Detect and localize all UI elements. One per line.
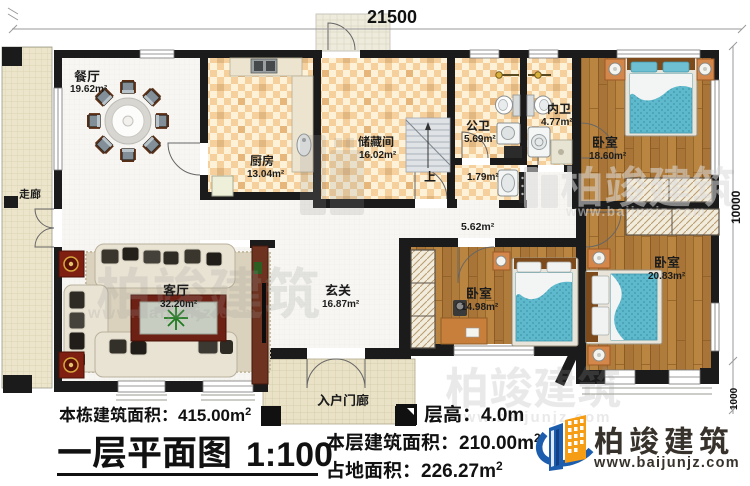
svg-text:5.62m²: 5.62m² (461, 221, 495, 233)
svg-text:16.02m²: 16.02m² (359, 150, 397, 161)
svg-text:14.98m²: 14.98m² (461, 302, 499, 313)
svg-text:20.83m²: 20.83m² (648, 271, 686, 282)
svg-text:1000: 1000 (729, 387, 740, 410)
svg-text:4.0m: 4.0m (481, 405, 524, 426)
svg-text:16.87m²: 16.87m² (322, 299, 360, 310)
svg-text:www.baijunjz.com: www.baijunjz.com (593, 455, 740, 471)
svg-text:226.27m2: 226.27m2 (421, 459, 503, 482)
svg-text:1.79m²: 1.79m² (467, 172, 499, 183)
svg-text:www.baijunjz.com: www.baijunjz.com (449, 409, 611, 426)
svg-text:5.69m²: 5.69m² (464, 134, 496, 145)
svg-text:10000: 10000 (729, 190, 743, 224)
svg-text:19.62m²: 19.62m² (70, 84, 108, 95)
svg-text:21500: 21500 (367, 7, 417, 27)
svg-text:1:100: 1:100 (246, 436, 333, 474)
svg-text:13.04m²: 13.04m² (247, 169, 285, 180)
svg-text:32.20m²: 32.20m² (160, 299, 198, 310)
svg-text:www.baijunjz.com: www.baijunjz.com (565, 204, 707, 219)
svg-text:18.60m²: 18.60m² (589, 151, 627, 162)
svg-text:210.00m2: 210.00m2 (459, 431, 541, 454)
svg-text:4.77m²: 4.77m² (541, 117, 573, 128)
svg-text:415.00m2: 415.00m2 (178, 406, 251, 425)
